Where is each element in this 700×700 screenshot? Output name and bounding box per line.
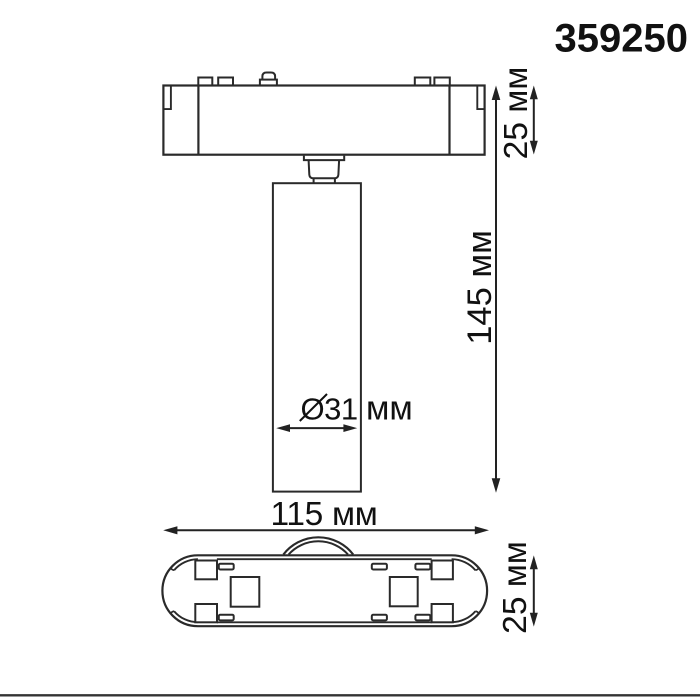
svg-text:O31: O31 bbox=[301, 392, 358, 427]
svg-text:115 мм: 115 мм bbox=[271, 496, 378, 533]
svg-text:25 мм: 25 мм bbox=[498, 67, 535, 160]
svg-text:25 мм: 25 мм bbox=[497, 541, 534, 634]
svg-text:359250: 359250 bbox=[555, 17, 688, 61]
svg-text:мм: мм bbox=[366, 390, 413, 428]
svg-text:145 мм: 145 мм bbox=[461, 230, 499, 345]
